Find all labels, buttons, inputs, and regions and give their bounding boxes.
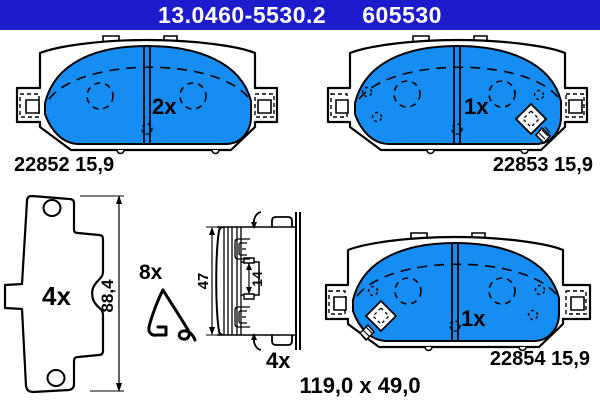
backplate-rear-drawing: 88,4 4x: [5, 195, 124, 392]
mounting-hole: [44, 200, 61, 216]
pad-drawing-bottom-right: 1x: [326, 233, 590, 351]
pad-id-top-right: 22853 15,9: [493, 154, 593, 176]
clip-wire-left: [149, 290, 166, 335]
plate-edge-lines: [296, 212, 300, 350]
cross-section-drawing: 14 47 4x: [195, 212, 300, 373]
plate-lugs: [272, 217, 292, 345]
pad-drawing-top-left: 2x: [17, 36, 277, 154]
qty-label-top-left: 2x: [152, 94, 177, 119]
dim-height-label: 88,4: [98, 279, 117, 313]
pad-id-bottom-right: 22854 15,9: [490, 348, 590, 370]
spring-clip-drawing: 8x: [139, 261, 195, 340]
pad-id-top-left: 22852 15,9: [14, 154, 114, 176]
qty-label-backplate: 4x: [42, 281, 71, 311]
pad-drawing-top-right: 1x: [328, 36, 587, 154]
overall-dimensions-label: 119,0 x 49,0: [299, 373, 420, 398]
mounting-hole: [48, 370, 65, 386]
brake-pad-datasheet: 13.0460-5530.2 605530 2x 22852 15,9: [0, 0, 600, 400]
dim-width-label: 47: [195, 273, 212, 290]
qty-label-clip: 8x: [139, 261, 163, 284]
clip-wire-right: [163, 290, 195, 340]
friction-edge: [216, 227, 220, 335]
technical-drawing: 2x 22852 15,9 1x 22853 15,9: [0, 0, 600, 400]
dim-gap-label: 14: [249, 271, 265, 287]
qty-label-section: 4x: [266, 348, 291, 373]
corner-chamfers: [218, 227, 223, 335]
qty-label-bottom-right: 1x: [461, 306, 486, 331]
qty-label-top-right: 1x: [464, 94, 489, 119]
